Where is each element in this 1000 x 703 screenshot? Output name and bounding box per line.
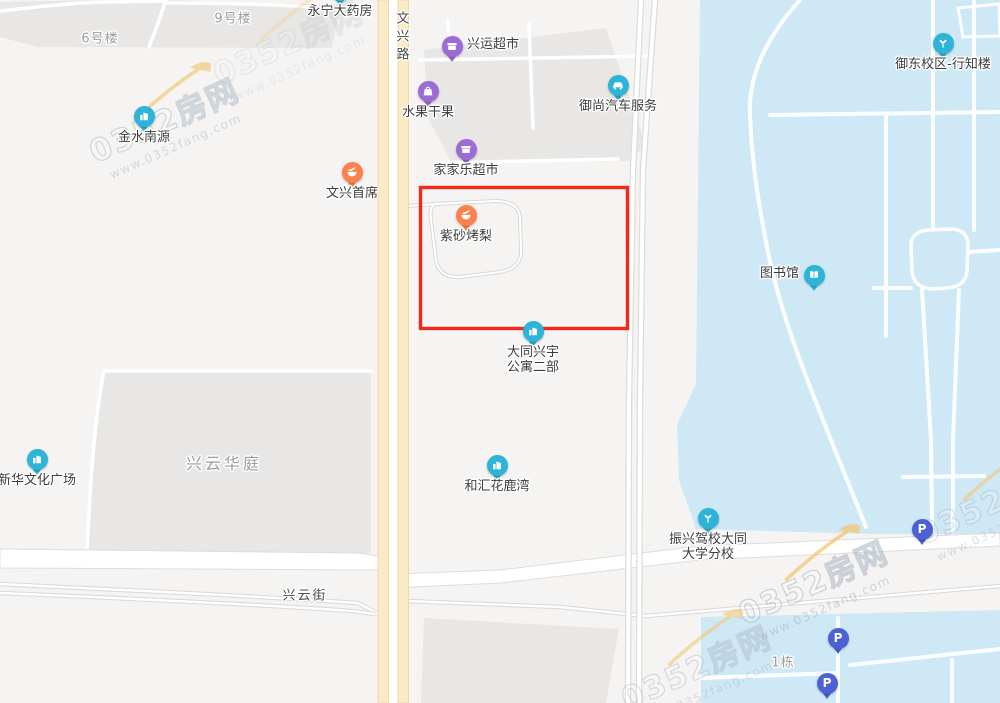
- building-icon: [487, 455, 508, 476]
- poi-label: 永宁大药房: [307, 5, 372, 20]
- poi-label: 新华文化广场: [0, 474, 76, 489]
- building-icon: [27, 449, 48, 470]
- base-map: [0, 0, 1000, 703]
- poi-label: 水果干果: [402, 106, 454, 121]
- poi-label: 家家乐超市: [433, 164, 498, 179]
- poi-label: 文兴首席: [326, 187, 378, 202]
- map-canvas[interactable]: 0352房网 www.0352fang.com 0352房网 www.0352f…: [0, 0, 1000, 703]
- poi-label: 和汇花鹿湾: [464, 480, 529, 495]
- building-icon: [134, 106, 155, 127]
- parking-icon: P: [817, 673, 838, 694]
- car-icon: [608, 75, 629, 96]
- poi-label: 金水南源: [118, 131, 170, 146]
- poi-label: 兴运超市: [467, 38, 519, 53]
- sprout-icon: [698, 508, 719, 529]
- bag-icon: [418, 81, 439, 102]
- poi-label: 振兴驾校大同大学分校: [669, 533, 747, 563]
- poi-label: 大同兴宇公寓二部: [507, 346, 559, 376]
- store-icon: [442, 36, 463, 57]
- food-icon: [342, 162, 363, 183]
- parking-icon: P: [828, 628, 849, 649]
- poi-label: 紫砂烤梨: [440, 230, 492, 245]
- poi-label: 御东校区-行知楼: [895, 58, 991, 73]
- poi-label: 御尚汽车服务: [579, 100, 657, 115]
- parking-icon: P: [912, 519, 933, 540]
- book-icon: [804, 265, 825, 286]
- sprout-icon: [933, 33, 954, 54]
- building-icon: [523, 321, 544, 342]
- poi-label: 图书馆: [760, 267, 799, 282]
- store-icon: [456, 139, 477, 160]
- food-icon: [456, 205, 477, 226]
